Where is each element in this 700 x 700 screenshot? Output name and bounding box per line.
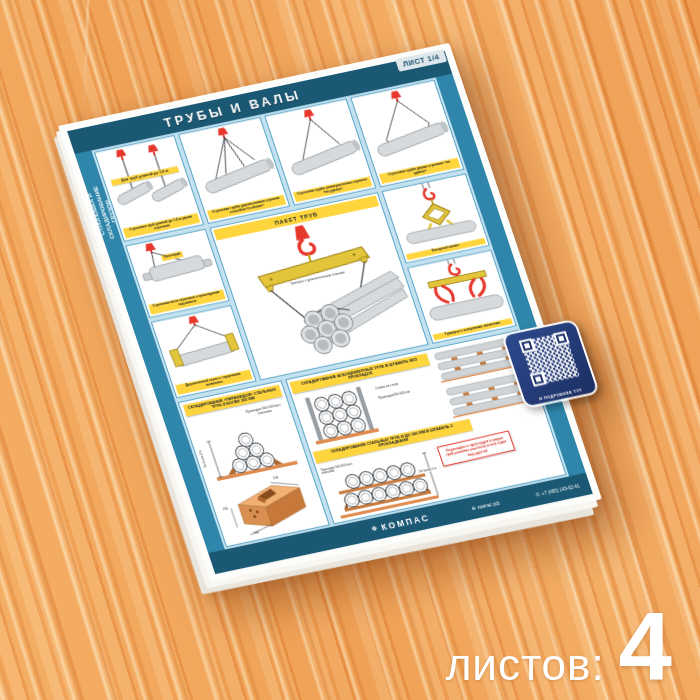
kompas-logo-icon: ❖: [370, 525, 379, 534]
spacer-alignment-warning: Подкладки и прокладки в рядах труб должн…: [437, 430, 516, 467]
scene: ТРУБЫ И ВАЛЫ Строповка и складирование г…: [0, 0, 700, 700]
poster-pad: ТРУБЫ И ВАЛЫ Строповка и складирование г…: [58, 43, 602, 582]
brand-name: КОМПАС: [380, 513, 431, 533]
poster-frame: ТРУБЫ И ВАЛЫ Строповка и складирование г…: [67, 51, 593, 574]
qr-caption: И ПОДРОБНЕЕ ТУТ: [525, 385, 597, 404]
sheets-count: 4: [619, 609, 672, 686]
end-grip-sling-diagram: [152, 306, 250, 376]
qr-finder-icon: [553, 331, 570, 346]
sheets-count-overlay: листов: 4: [446, 609, 672, 690]
asbestos-grid-diagram: [297, 383, 384, 448]
poster-content: Для труб длиной до 1,5 м Строповка труб …: [91, 77, 569, 549]
shaft-sling-diagram: [127, 229, 224, 296]
traverse-pincer-diagram: [408, 250, 513, 331]
sheets-label: листов:: [446, 640, 605, 690]
phone-icon: ✆: [535, 491, 541, 498]
globe-icon: ⊕: [471, 505, 477, 512]
qr-code: [519, 331, 581, 387]
poster-sheet: ТРУБЫ И ВАЛЫ Строповка и складирование г…: [58, 43, 602, 582]
